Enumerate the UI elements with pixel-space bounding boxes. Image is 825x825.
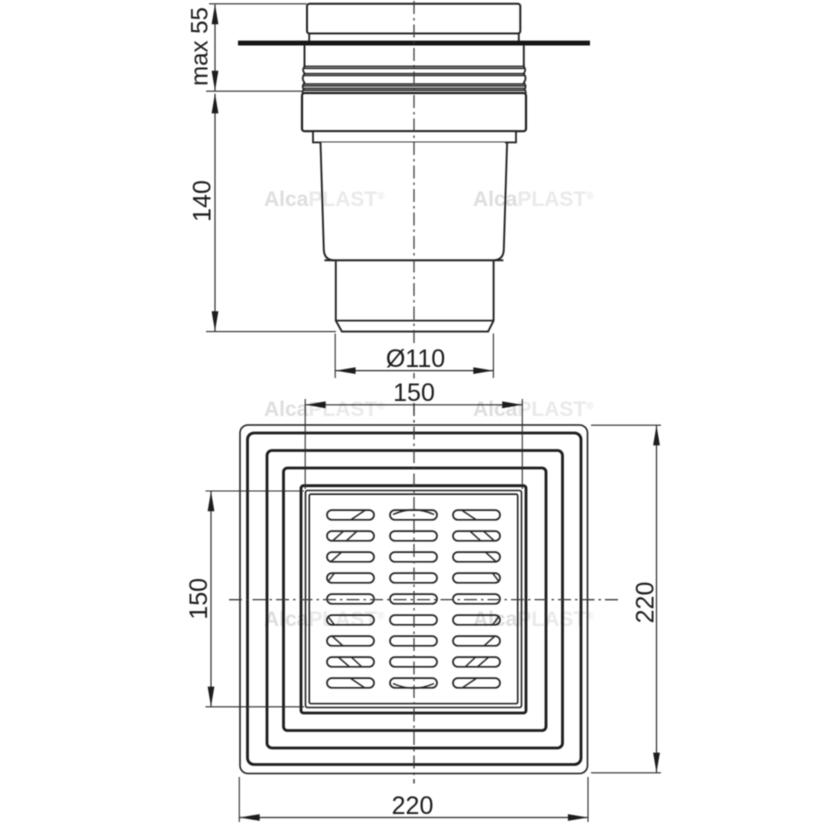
svg-text:AlcaPLAST®: AlcaPLAST® — [473, 608, 594, 631]
svg-text:220: 220 — [392, 792, 434, 820]
svg-text:AlcaPLAST®: AlcaPLAST® — [473, 188, 594, 211]
svg-text:max 55: max 55 — [187, 7, 214, 86]
svg-text:AlcaPLAST®: AlcaPLAST® — [264, 398, 385, 421]
svg-text:AlcaPLAST®: AlcaPLAST® — [264, 608, 385, 631]
svg-text:AlcaPLAST®: AlcaPLAST® — [473, 398, 594, 421]
svg-text:220: 220 — [632, 582, 660, 624]
svg-text:AlcaPLAST®: AlcaPLAST® — [264, 188, 385, 211]
svg-text:150: 150 — [185, 578, 213, 620]
svg-text:Ø110: Ø110 — [386, 345, 445, 373]
svg-text:150: 150 — [393, 379, 435, 407]
svg-text:140: 140 — [189, 180, 217, 222]
